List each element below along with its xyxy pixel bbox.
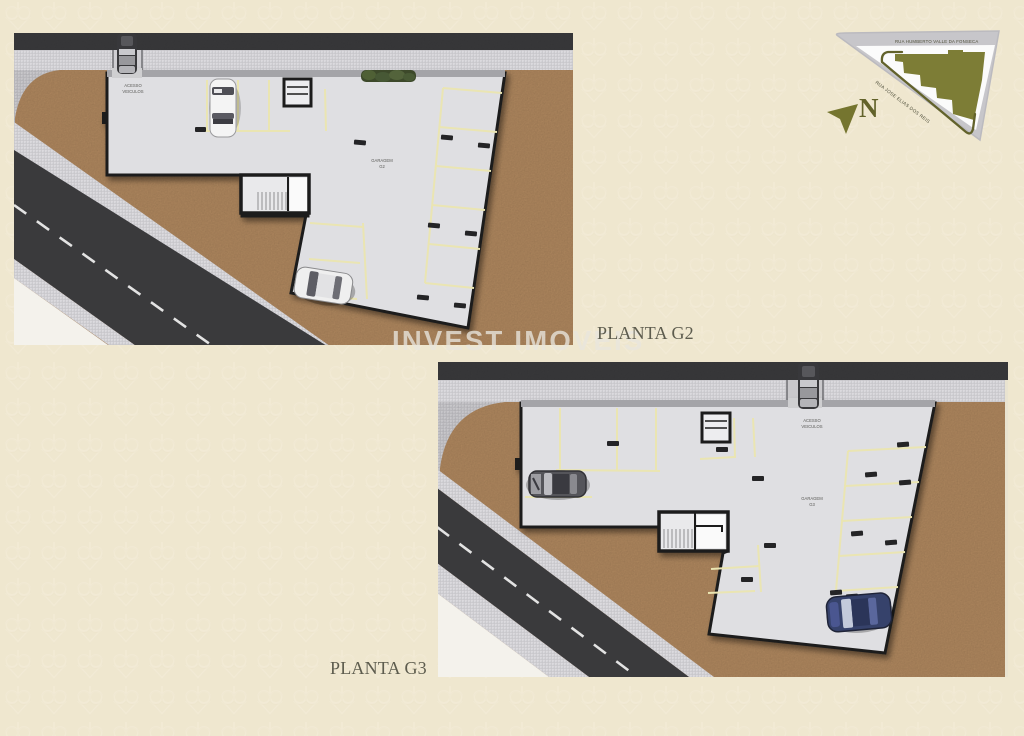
svg-text:ACESSO: ACESSO <box>124 83 142 88</box>
svg-text:G2: G2 <box>379 164 385 169</box>
svg-text:N: N <box>859 93 879 123</box>
svg-text:ACESSO: ACESSO <box>803 418 821 423</box>
svg-text:G3: G3 <box>809 502 815 507</box>
svg-text:GARAGEM: GARAGEM <box>801 496 823 501</box>
svg-text:GARAGEM: GARAGEM <box>371 158 393 163</box>
svg-text:VEICULOS: VEICULOS <box>122 89 143 94</box>
svg-text:VEICULOS: VEICULOS <box>801 424 822 429</box>
svg-text:RUA HUMBERTO VALLE DA FONSECA: RUA HUMBERTO VALLE DA FONSECA <box>895 39 978 44</box>
